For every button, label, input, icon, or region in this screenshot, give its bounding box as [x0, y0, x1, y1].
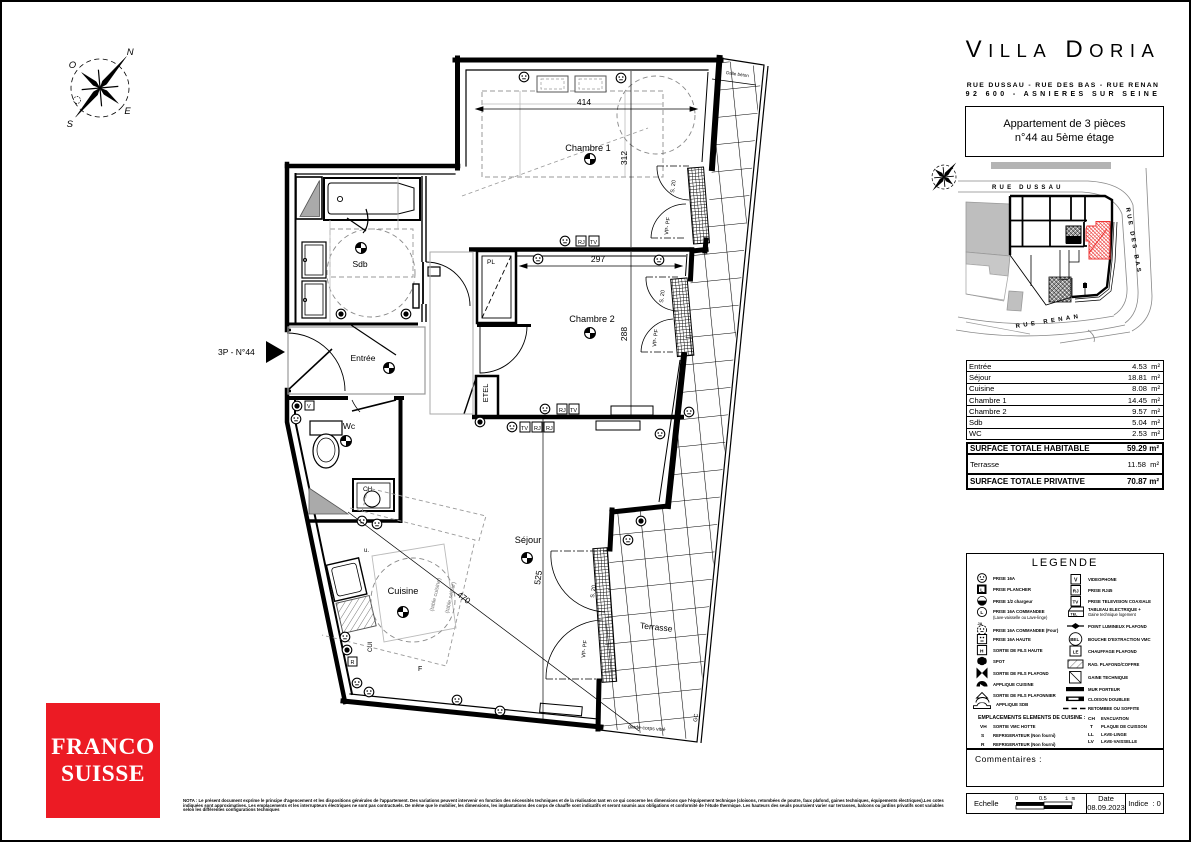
svg-text:0: 0 — [1015, 796, 1018, 802]
svg-text:PRISE RJ45: PRISE RJ45 — [1088, 588, 1113, 593]
svg-text:TV: TV — [590, 240, 597, 246]
svg-text:CUI: CUI — [368, 641, 374, 652]
svg-text:VIDEOPHONE: VIDEOPHONE — [1088, 577, 1117, 582]
svg-text:EMPLACEMENTS ELEMENTS DE CUISI: EMPLACEMENTS ELEMENTS DE CUISINE : — [978, 715, 1086, 721]
svg-text:PLAQUE DE CUISSON: PLAQUE DE CUISSON — [1101, 724, 1147, 729]
svg-text:LL: LL — [1088, 732, 1094, 738]
svg-text:3P - N°44: 3P - N°44 — [218, 347, 255, 357]
svg-text:Chambre 1: Chambre 1 — [565, 143, 610, 153]
svg-text:H: H — [980, 649, 984, 655]
svg-text:SORTIE DE FILS PLAFONNIER: SORTIE DE FILS PLAFONNIER — [993, 693, 1057, 698]
svg-text:GAINE TECHNIQUE: GAINE TECHNIQUE — [1088, 675, 1128, 680]
svg-text:O: O — [69, 60, 77, 71]
svg-text:LV: LV — [1088, 739, 1095, 745]
svg-text:Wc: Wc — [343, 421, 356, 431]
svg-text:SORTIE DE FILS PLAFOND: SORTIE DE FILS PLAFOND — [993, 671, 1049, 676]
svg-text:REFRIGERATEUR (Non fourni): REFRIGERATEUR (Non fourni) — [993, 733, 1056, 738]
svg-text:u.: u. — [364, 548, 369, 554]
svg-text:S. 20: S. 20 — [670, 180, 678, 193]
svg-text:SORTIE DE FILS HAUTE: SORTIE DE FILS HAUTE — [993, 648, 1043, 653]
svg-text:REFRIGERATEUR (Non fourni): REFRIGERATEUR (Non fourni) — [993, 742, 1056, 747]
svg-text:V: V — [1074, 578, 1078, 584]
svg-text:PRISE PLANCHER: PRISE PLANCHER — [993, 587, 1032, 592]
svg-text:N: N — [127, 47, 134, 58]
svg-text:R: R — [351, 660, 355, 666]
svg-text:(table cuisine): (table cuisine) — [429, 577, 443, 612]
svg-text:LAVE-LINGE: LAVE-LINGE — [1101, 732, 1127, 737]
svg-text:PRISE 16A COMMANDEE (Four): PRISE 16A COMMANDEE (Four) — [993, 628, 1059, 633]
svg-text:297: 297 — [591, 254, 605, 264]
svg-text:S. 20: S. 20 — [659, 290, 667, 303]
svg-text:ETEL: ETEL — [481, 384, 490, 403]
svg-text:E: E — [124, 106, 131, 117]
svg-text:Sdb: Sdb — [352, 259, 367, 269]
svg-text:RJ: RJ — [578, 240, 585, 246]
svg-text:Chambre 2: Chambre 2 — [569, 314, 614, 324]
svg-text:S: S — [67, 119, 74, 130]
svg-text:F: F — [418, 666, 422, 673]
svg-text:V: V — [307, 404, 311, 410]
svg-text:RETOMBEE OU SOFFITE: RETOMBEE OU SOFFITE — [1088, 706, 1139, 711]
svg-text:TV: TV — [570, 408, 577, 414]
svg-text:TEL: TEL — [1071, 613, 1079, 617]
svg-text:RUE DES BAS: RUE DES BAS — [1124, 207, 1142, 274]
svg-text:PRISE 16A: PRISE 16A — [993, 576, 1015, 581]
svg-text:EVACUATION: EVACUATION — [1101, 716, 1129, 721]
svg-text:CH: CH — [1088, 716, 1095, 722]
svg-text:PRISE TELEVISION COAXIALE: PRISE TELEVISION COAXIALE — [1088, 599, 1151, 604]
svg-text:414: 414 — [577, 97, 591, 107]
svg-text:PRISE 16A HAUTE: PRISE 16A HAUTE — [993, 637, 1031, 642]
svg-text:VP- PF: VP- PF — [581, 639, 589, 658]
svg-text:SPOT: SPOT — [993, 659, 1005, 664]
svg-text:APPLIQUE SDB: APPLIQUE SDB — [996, 702, 1028, 707]
svg-text:CHAUFFAGE PLAFOND: CHAUFFAGE PLAFOND — [1088, 649, 1137, 654]
svg-text:Entrée: Entrée — [350, 353, 375, 363]
svg-text:312: 312 — [619, 151, 629, 165]
svg-text:TV: TV — [521, 426, 528, 432]
svg-text:525: 525 — [532, 570, 544, 586]
svg-text:288: 288 — [619, 327, 629, 341]
svg-text:GC: GC — [693, 713, 700, 722]
svg-text:MUR PORTEUR: MUR PORTEUR — [1088, 687, 1121, 692]
svg-text:RUE DUSSAU: RUE DUSSAU — [992, 185, 1064, 191]
svg-text:Gaine technique logement: Gaine technique logement — [1088, 612, 1137, 617]
svg-text:RAD. PLAFOND/COFFRE: RAD. PLAFOND/COFFRE — [1088, 662, 1139, 667]
svg-text:VP- PF: VP- PF — [652, 328, 660, 347]
svg-text:RJ: RJ — [1073, 589, 1079, 594]
svg-text:0.5: 0.5 — [1039, 796, 1047, 802]
svg-text:PL: PL — [487, 259, 495, 266]
svg-text:VP- PF: VP- PF — [664, 216, 672, 235]
svg-text:1 m: 1 m — [1065, 795, 1076, 802]
svg-text:R: R — [981, 742, 985, 747]
svg-text:BOUCHE D'EXTRACTION VMC: BOUCHE D'EXTRACTION VMC — [1088, 637, 1151, 642]
svg-text:SORTIE VMC HOTTE: SORTIE VMC HOTTE — [993, 724, 1036, 729]
svg-text:Cuisine: Cuisine — [388, 586, 419, 596]
svg-text:LAVE-VAISSELLE: LAVE-VAISSELLE — [1101, 739, 1137, 744]
svg-text:T: T — [1090, 724, 1093, 730]
svg-text:L: L — [980, 588, 983, 593]
svg-text:S: S — [981, 733, 985, 739]
svg-text:VH: VH — [980, 724, 987, 730]
svg-text:CLOISON DOUBLEE: CLOISON DOUBLEE — [1088, 697, 1130, 702]
svg-text:APPLIQUE CUISINE: APPLIQUE CUISINE — [993, 682, 1034, 687]
svg-text:L: L — [980, 610, 983, 616]
svg-text:RJ: RJ — [546, 426, 553, 432]
svg-text:RJ: RJ — [559, 408, 566, 414]
svg-text:PRISE 16A COMMANDEE: PRISE 16A COMMANDEE — [993, 609, 1045, 614]
svg-text:PRISE 1/2 chargeur: PRISE 1/2 chargeur — [993, 599, 1033, 604]
svg-text:POINT LUMINEUX PLAFOND: POINT LUMINEUX PLAFOND — [1088, 624, 1147, 629]
svg-text:TV: TV — [1073, 600, 1080, 605]
svg-text:BEL: BEL — [1070, 637, 1079, 642]
svg-text:(Lave-vaisselle ou Lave-linge): (Lave-vaisselle ou Lave-linge) — [993, 615, 1048, 620]
svg-text:RJ: RJ — [534, 426, 541, 432]
svg-text:LE: LE — [1073, 650, 1079, 655]
svg-text:Séjour: Séjour — [515, 535, 542, 545]
